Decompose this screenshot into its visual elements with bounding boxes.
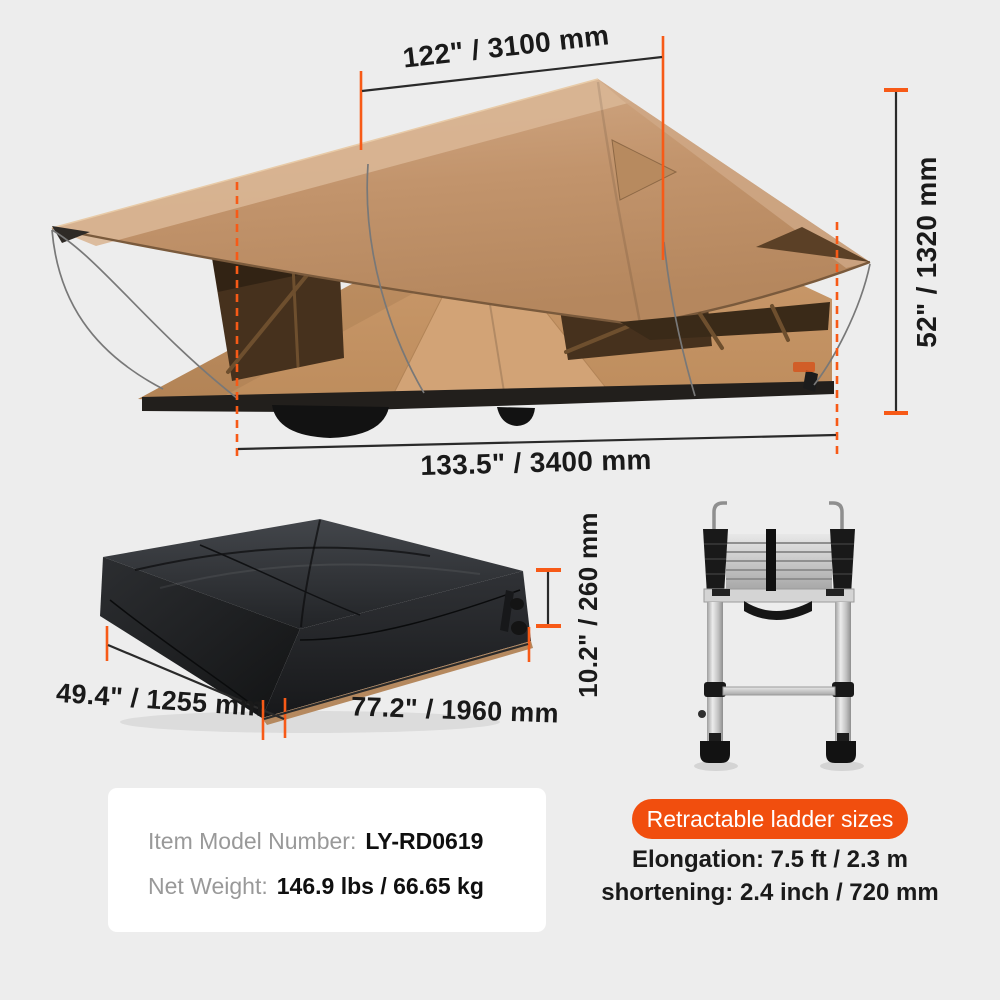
ladder-handle [744, 601, 812, 620]
model-number-label: Item Model Number: [148, 828, 356, 854]
ladder-illustration [694, 503, 864, 771]
model-number-value: LY-RD0619 [365, 828, 483, 854]
ladder-hook-left [714, 503, 727, 532]
ladder-strap [766, 529, 776, 591]
ladder-cone-right [830, 529, 855, 595]
net-weight-value: 146.9 lbs / 66.65 kg [277, 873, 484, 899]
info-card: Item Model Number:LY-RD0619 Net Weight:1… [108, 788, 546, 932]
ladder-rail-right [835, 602, 851, 744]
ladder-deck-pad-left [712, 589, 730, 596]
ladder-elongation-text: Elongation: 7.5 ft / 2.3 m [615, 846, 925, 874]
product-dimension-infographic: 122" / 3100 mm 52" / 1320 mm 133.5" / 34… [0, 0, 1000, 1000]
ladder-rail-left [707, 602, 723, 744]
net-weight-label: Net Weight: [148, 873, 268, 899]
model-number-row: Item Model Number:LY-RD0619 [148, 828, 483, 855]
ladder-pin [698, 710, 706, 718]
rooftop-tent-illustration [52, 79, 870, 438]
ladder-hook-right [829, 503, 842, 532]
ladder-foot-right [826, 741, 856, 763]
dimension-label-pack-height: 10.2" / 260 mm [572, 475, 604, 735]
ladder-deck-pad-right [826, 589, 844, 596]
packed-tent-wheel-1 [510, 598, 524, 610]
guy-wire-left-outer [52, 230, 163, 389]
ladder-foot-left [700, 741, 730, 763]
brand-patch [793, 362, 815, 372]
tent-under-bag [272, 405, 389, 438]
ladder-cone-left [703, 529, 728, 595]
retractable-ladder-badge: Retractable ladder sizes [632, 799, 908, 839]
tent-under-hook [497, 407, 535, 426]
dimension-label-height: 52" / 1320 mm [910, 92, 944, 412]
net-weight-row: Net Weight:146.9 lbs / 66.65 kg [148, 873, 484, 900]
ladder-mid-rung [723, 687, 835, 695]
ladder-shortening-text: shortening: 2.4 inch / 720 mm [600, 879, 940, 907]
packed-tent-wheel-2 [511, 621, 527, 635]
